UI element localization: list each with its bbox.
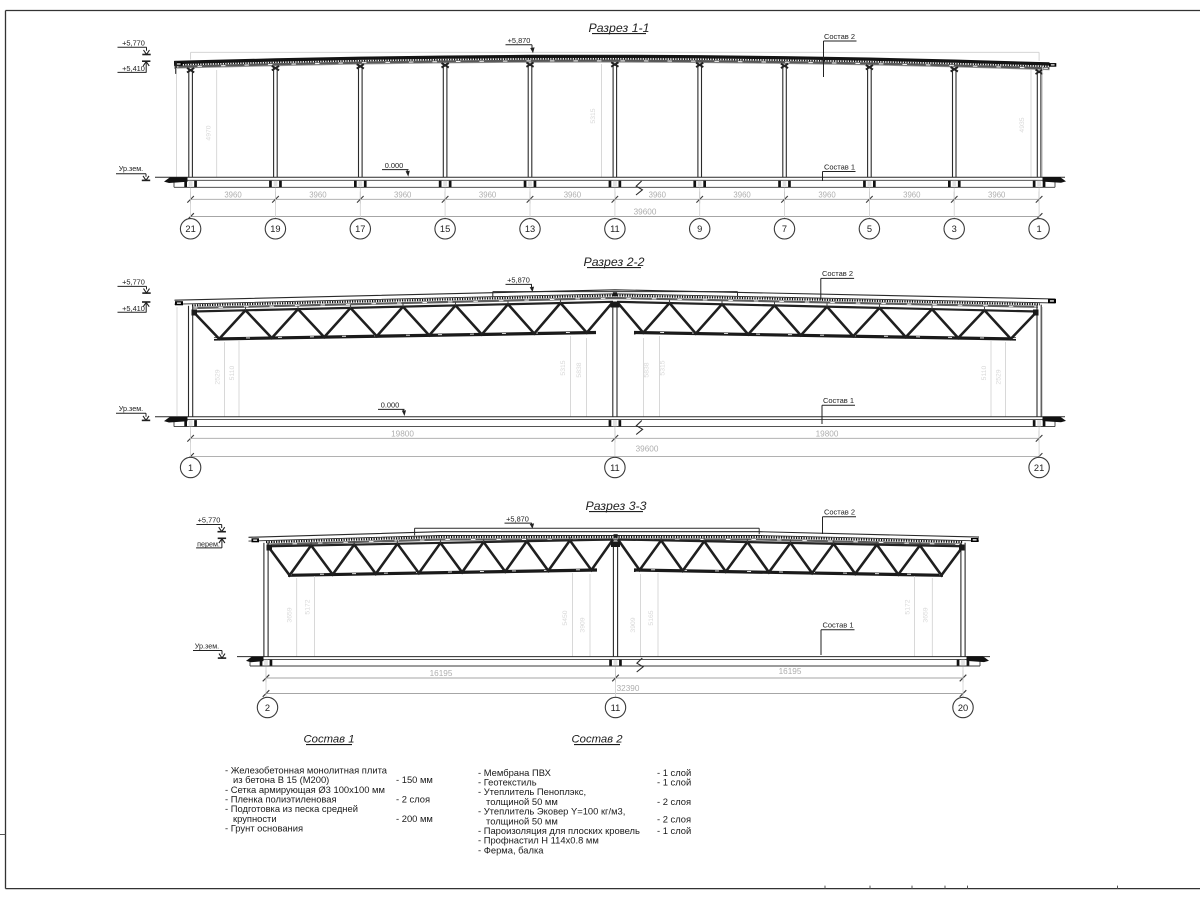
svg-text:Разрез 3-3: Разрез 3-3 <box>586 499 647 513</box>
svg-text:5165: 5165 <box>648 610 655 625</box>
svg-text:15: 15 <box>440 224 450 234</box>
svg-text:17: 17 <box>355 224 365 234</box>
svg-text:Состав 2: Состав 2 <box>572 734 624 746</box>
svg-text:3960: 3960 <box>818 190 836 199</box>
svg-text:+5,870: +5,870 <box>506 514 529 523</box>
svg-text:+5,770: +5,770 <box>122 278 145 287</box>
svg-text:3960: 3960 <box>903 190 921 199</box>
svg-text:21: 21 <box>185 224 195 234</box>
svg-text:9: 9 <box>697 224 702 234</box>
svg-text:- Грунт основания: - Грунт основания <box>225 823 303 834</box>
svg-text:3909: 3909 <box>630 617 637 632</box>
svg-text:4970: 4970 <box>206 125 213 140</box>
svg-text:5838: 5838 <box>644 362 651 377</box>
svg-text:3909: 3909 <box>580 617 587 632</box>
svg-text:16195: 16195 <box>430 669 453 678</box>
svg-text:Состав 1: Состав 1 <box>822 621 853 630</box>
svg-text:+5,770: +5,770 <box>198 515 221 524</box>
svg-text:3659: 3659 <box>287 607 294 622</box>
svg-text:- Ферма, балка: - Ферма, балка <box>478 844 544 855</box>
svg-text:Разрез 2-2: Разрез 2-2 <box>584 255 645 269</box>
svg-text:0.000: 0.000 <box>381 401 400 410</box>
svg-text:+5,770: +5,770 <box>122 38 145 47</box>
svg-text:Состав 2: Состав 2 <box>824 508 855 517</box>
svg-text:3960: 3960 <box>564 190 582 199</box>
svg-text:+5,870: +5,870 <box>508 36 531 45</box>
svg-text:2529: 2529 <box>996 369 1003 384</box>
svg-text:5110: 5110 <box>981 365 988 380</box>
svg-text:1: 1 <box>188 463 193 473</box>
svg-text:2529: 2529 <box>215 369 222 384</box>
svg-text:5110: 5110 <box>229 365 236 380</box>
svg-text:19: 19 <box>270 224 280 234</box>
svg-text:Состав 1: Состав 1 <box>304 734 355 746</box>
svg-text:5172: 5172 <box>305 599 312 614</box>
svg-text:11: 11 <box>610 463 620 473</box>
svg-text:- 200 мм: - 200 мм <box>396 813 433 824</box>
svg-text:5838: 5838 <box>576 362 583 377</box>
svg-text:7: 7 <box>782 224 787 234</box>
svg-text:+5,410: +5,410 <box>122 64 145 73</box>
svg-text:- 2 слоя: - 2 слоя <box>657 796 691 807</box>
svg-text:3960: 3960 <box>309 190 327 199</box>
svg-text:- 150 мм: - 150 мм <box>396 774 433 785</box>
svg-text:Состав 2: Состав 2 <box>822 269 853 278</box>
svg-text:3960: 3960 <box>988 190 1006 199</box>
svg-text:3960: 3960 <box>394 190 412 199</box>
svg-text:3659: 3659 <box>922 607 929 622</box>
svg-text:20: 20 <box>958 703 968 713</box>
svg-text:5: 5 <box>867 224 872 234</box>
svg-text:перем.: перем. <box>197 540 220 549</box>
svg-text:0.000: 0.000 <box>385 161 404 170</box>
svg-text:- 1 слой: - 1 слой <box>657 825 691 836</box>
svg-text:5172: 5172 <box>905 599 912 614</box>
svg-text:39600: 39600 <box>634 208 657 217</box>
svg-text:Разрез 1-1: Разрез 1-1 <box>589 21 650 35</box>
svg-text:- 2 слоя: - 2 слоя <box>657 813 691 824</box>
svg-text:4935: 4935 <box>1019 117 1026 132</box>
svg-text:2: 2 <box>265 703 270 713</box>
svg-text:11: 11 <box>611 703 621 713</box>
svg-text:5315: 5315 <box>560 360 567 375</box>
svg-text:21: 21 <box>1034 463 1044 473</box>
svg-text:Ур.зем.: Ур.зем. <box>119 404 143 413</box>
svg-text:13: 13 <box>525 224 535 234</box>
svg-text:5315: 5315 <box>590 108 597 123</box>
svg-text:+5,410: +5,410 <box>122 304 145 313</box>
svg-text:3960: 3960 <box>479 190 497 199</box>
svg-text:19800: 19800 <box>816 429 839 438</box>
svg-text:3: 3 <box>952 224 957 234</box>
svg-text:32390: 32390 <box>617 684 640 693</box>
svg-text:- 2 слоя: - 2 слоя <box>396 794 430 805</box>
svg-text:1: 1 <box>1037 224 1042 234</box>
svg-text:Ур.зем.: Ур.зем. <box>195 642 219 651</box>
svg-text:Состав 1: Состав 1 <box>823 396 854 405</box>
svg-text:3960: 3960 <box>649 190 667 199</box>
svg-text:+5,870: +5,870 <box>507 276 530 285</box>
svg-text:16195: 16195 <box>779 667 802 676</box>
svg-text:3960: 3960 <box>733 190 751 199</box>
svg-text:Состав 1: Состав 1 <box>824 162 855 171</box>
svg-text:3960: 3960 <box>224 190 242 199</box>
svg-text:Ур.зем.: Ур.зем. <box>119 164 143 173</box>
svg-text:39600: 39600 <box>636 445 659 454</box>
svg-text:5315: 5315 <box>660 360 667 375</box>
svg-text:- 1 слой: - 1 слой <box>657 777 691 788</box>
svg-text:5450: 5450 <box>562 610 569 625</box>
svg-text:11: 11 <box>610 224 620 234</box>
svg-text:19800: 19800 <box>391 429 414 438</box>
svg-text:Состав 2: Состав 2 <box>824 32 855 41</box>
